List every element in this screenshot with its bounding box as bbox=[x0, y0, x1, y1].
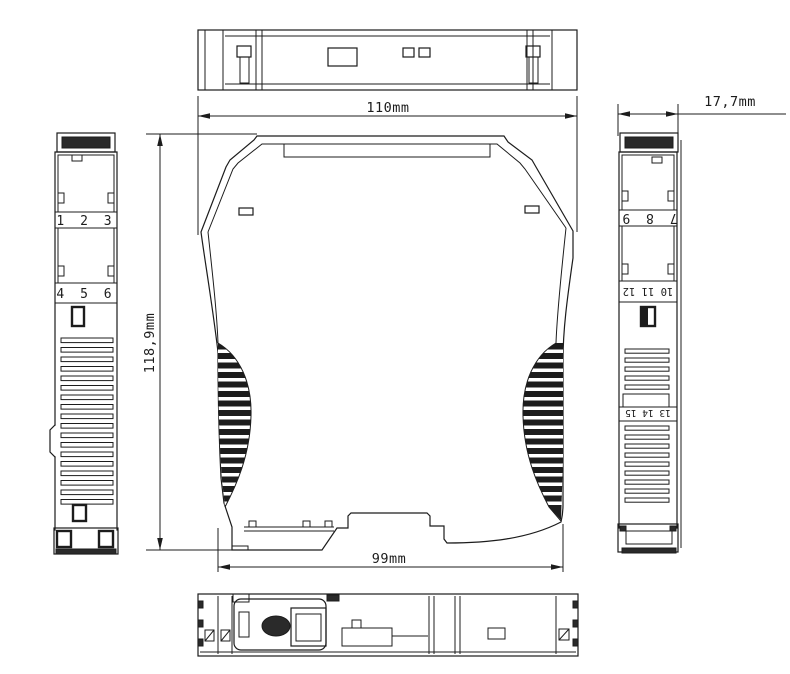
right-vent-slots-upper bbox=[625, 349, 669, 389]
terminal-numbers-13-14-15: 13 14 15 bbox=[625, 407, 671, 418]
front-latch-left bbox=[239, 208, 253, 215]
top-clamp-left bbox=[237, 46, 251, 83]
dimension-label-99mm: 99mm bbox=[372, 551, 407, 567]
left-terminal-block-1 bbox=[58, 155, 114, 212]
bottom-center-plate bbox=[342, 620, 428, 646]
bottom-clip-slot bbox=[239, 612, 249, 637]
left-vent-slots bbox=[61, 338, 113, 504]
top-led-window-2 bbox=[419, 48, 430, 57]
bottom-clamp-block bbox=[291, 608, 326, 646]
bottom-small-window bbox=[488, 628, 505, 639]
right-terminal-block-2 bbox=[622, 226, 674, 281]
top-view-outline bbox=[198, 30, 577, 90]
right-vent-slots-lower bbox=[625, 426, 669, 502]
top-led-window-1 bbox=[403, 48, 414, 57]
dimension-label-17-7mm: 17,7mm bbox=[704, 94, 756, 110]
screw-head bbox=[262, 616, 290, 636]
left-terminal-block-2 bbox=[58, 228, 114, 283]
bottom-view-outline bbox=[198, 594, 578, 656]
front-outline bbox=[201, 136, 573, 550]
top-display-window bbox=[328, 48, 357, 66]
din-module-drawing: 1 2 3 4 5 6 7 8 9 10 11 1 bbox=[0, 0, 790, 674]
left-indicator-window bbox=[72, 307, 84, 326]
dimension-110mm: 110mm bbox=[198, 96, 577, 235]
vent-wing-right bbox=[518, 343, 566, 521]
technical-drawing-page: 1 2 3 4 5 6 7 8 9 10 11 1 bbox=[0, 0, 790, 674]
left-bottom-cap bbox=[54, 528, 118, 554]
top-view bbox=[198, 30, 577, 90]
dimension-118-9mm: 118,9mm bbox=[142, 134, 257, 550]
front-view bbox=[201, 136, 573, 550]
bottom-view bbox=[198, 594, 578, 656]
left-edge-notch bbox=[50, 425, 55, 457]
terminal-numbers-4-5-6: 4 5 6 bbox=[56, 287, 115, 302]
terminal-numbers-7-8-9: 7 8 9 bbox=[618, 210, 677, 225]
din-rail-foot bbox=[232, 521, 334, 550]
terminal-numbers-10-11-12: 10 11 12 bbox=[623, 285, 674, 297]
left-lower-window bbox=[73, 505, 86, 521]
dimension-17-7mm: 17,7mm bbox=[618, 94, 786, 136]
right-terminal-block-1 bbox=[622, 155, 674, 210]
terminal-numbers-1-2-3: 1 2 3 bbox=[56, 214, 115, 229]
front-latch-right bbox=[525, 206, 539, 213]
left-view: 1 2 3 4 5 6 bbox=[50, 133, 118, 554]
right-view: 7 8 9 10 11 12 13 14 15 bbox=[618, 133, 681, 553]
right-bottom-cap bbox=[618, 524, 678, 553]
dimension-label-110mm: 110mm bbox=[366, 100, 409, 116]
vent-wing-left bbox=[214, 343, 256, 507]
dimension-label-118-9mm: 118,9mm bbox=[142, 313, 158, 373]
bottom-hinge-right bbox=[559, 629, 569, 640]
